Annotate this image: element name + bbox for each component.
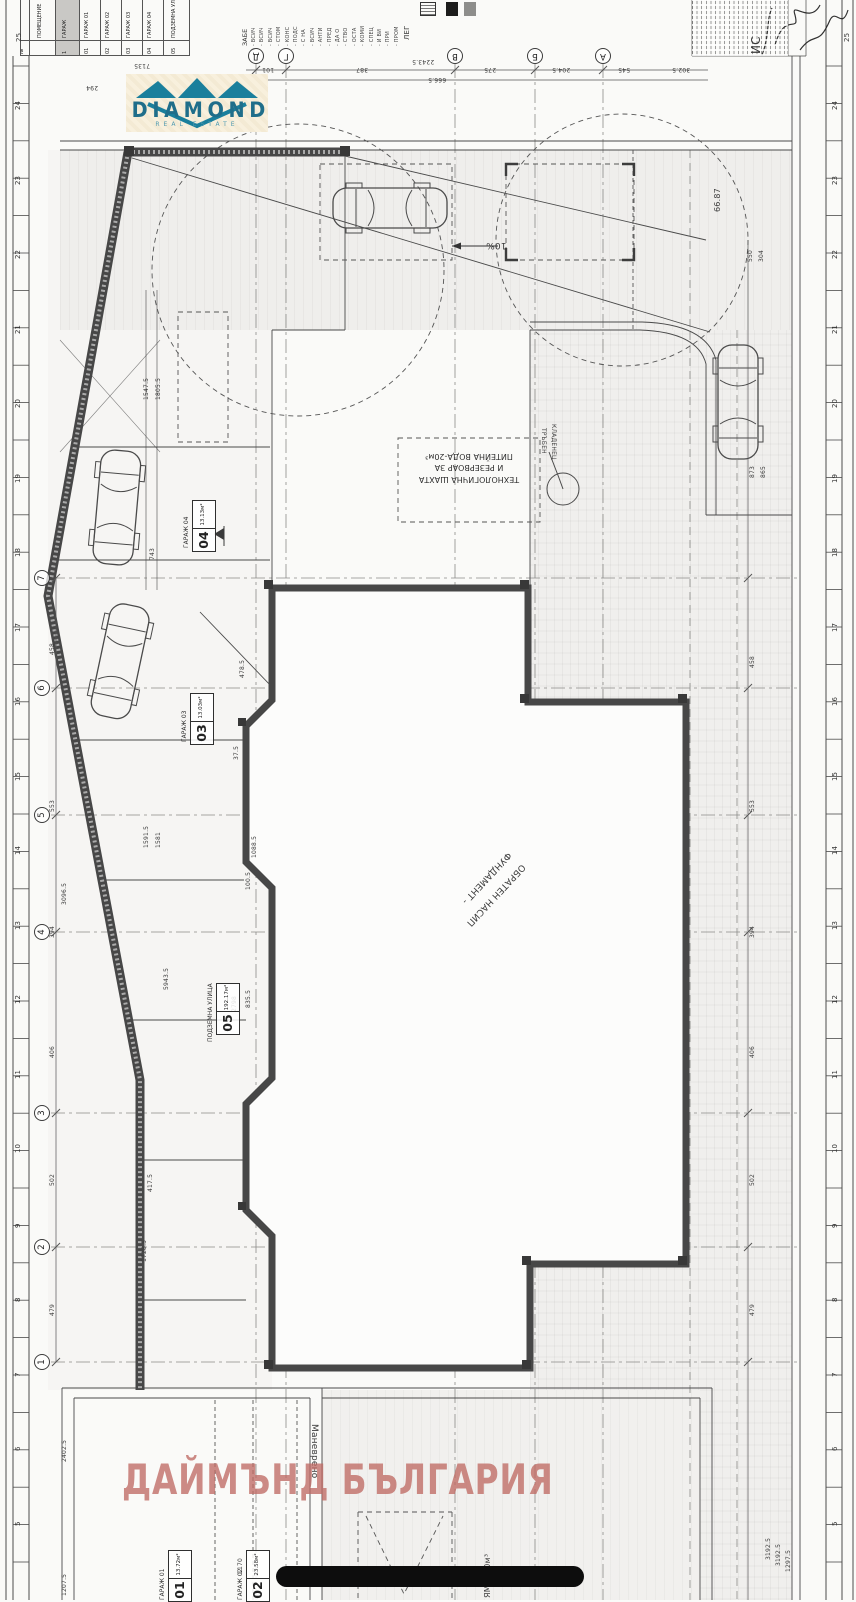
ruler-number: 19 [832, 474, 839, 483]
dimension-label: 2243.5 [412, 58, 434, 64]
note-line: - СТВО [344, 27, 349, 46]
ruler-number: 18 [832, 548, 839, 557]
right-yard-zone [530, 330, 792, 1600]
title-block-stamp [692, 0, 788, 56]
room-area-box: 0223.58м² [246, 1550, 270, 1602]
notes-title: ЗАБЕ [242, 29, 249, 46]
note-line: - ВСИЧ [252, 27, 257, 46]
axis-number-bubble: 1 [34, 1354, 50, 1370]
axis-number-bubble: 5 [34, 807, 50, 823]
dimension-label: 417.5 [148, 1174, 154, 1192]
ruler-number: 23 [15, 176, 22, 185]
dimension-label: 3192.5 [766, 1538, 772, 1560]
dimension-label: 406 [50, 1046, 56, 1058]
dimension-label: 3192.5 [776, 1544, 782, 1566]
dimension-label: 5943.5 [164, 968, 170, 990]
dimension-label: 1297.5 [786, 1550, 792, 1572]
shaft-line-3: ПИТЕЙНА ВОДА-20м³ [404, 450, 534, 462]
dimension-label: 304 [759, 250, 765, 262]
legend-table-column: ГАРАЖ 0303 [122, 0, 143, 56]
legend-room-label: ГАРАЖ [62, 20, 68, 38]
dimension-label: 101 [262, 66, 274, 72]
ruler-number: 17 [15, 623, 22, 632]
ruler-number: 20 [832, 399, 839, 408]
ruler-number: 6 [15, 1447, 22, 1451]
ruler-number: 8 [832, 1298, 839, 1302]
room-label: ГАРАЖ 02 [238, 1569, 244, 1601]
ruler-number: 22 [832, 250, 839, 259]
annotation-label: ОБРАТЕН НАСИП [464, 862, 526, 927]
legend-room-label: ГАРАЖ 01 [84, 12, 90, 38]
room-number: 02 [247, 1578, 269, 1601]
dimension-label: 7135 [134, 62, 150, 68]
ruler-number: 8 [15, 1298, 22, 1302]
dimension-label: 458 [750, 656, 756, 668]
legend-room-label: ГАРАЖ 02 [105, 12, 111, 38]
ruler-number: 21 [15, 325, 22, 334]
dimension-label: 743 [150, 548, 156, 560]
dimension-label: 1547.5 [144, 378, 150, 400]
axis-letter-bubble: Д [248, 48, 264, 64]
legend-room-number: 1 [62, 51, 68, 54]
ruler-number: 12 [15, 995, 22, 1004]
legend-room-number: 02 [105, 48, 111, 54]
dimension-label: 387 [356, 66, 368, 72]
legend-table-column: ПОДЗЕМНА УЛИЦА05 [164, 0, 190, 56]
room-area-value: 23.58м² [247, 1551, 269, 1578]
dimension-label: 550 [748, 250, 754, 262]
dimension-label: 204.5 [552, 66, 570, 72]
axis-number-bubble: 6 [34, 680, 50, 696]
legend-room-number: 04 [147, 48, 153, 54]
note-line: - С НА [302, 29, 307, 46]
dimension-label: 553 [50, 800, 56, 812]
legend-room-number: № [21, 49, 25, 54]
dimension-label: 100.5 [246, 872, 252, 890]
ruler-number: 21 [832, 325, 839, 334]
room-area-value: 192.17м² [217, 984, 239, 1011]
room-number: 03 [191, 721, 213, 744]
axis-number-bubble: 4 [34, 924, 50, 940]
ruler-number: 16 [15, 697, 22, 706]
dimension-label: 873 [750, 466, 756, 478]
note-line: - ПРОМ [395, 26, 400, 46]
ruler-number: 12 [832, 995, 839, 1004]
dimension-label: 2402.5 [62, 1440, 68, 1462]
dimension-label: 865 [761, 466, 767, 478]
room-area-value: 13.03м² [191, 694, 213, 721]
note-line: - ДА О [336, 29, 341, 46]
room-area-box: 05192.17м² [216, 983, 240, 1035]
ruler-number: 13 [832, 921, 839, 930]
dimension-label: 394 [50, 926, 56, 938]
note-line: - ПОДС [294, 26, 299, 46]
dimension-label: 835.5 [246, 990, 252, 1008]
ruler-number: 10 [832, 1144, 839, 1153]
axis-letter-bubble: Г [278, 48, 294, 64]
room-number: 04 [193, 528, 215, 551]
note-line: - ВСИЧ [260, 27, 265, 46]
ruler-number: 24 [15, 101, 22, 110]
note-line: - ПРЕД [328, 28, 333, 46]
dimension-label: 1805.5 [156, 378, 162, 400]
ruler-number: 7 [832, 1372, 839, 1376]
annotation-label: ФУНДАМЕНТ - [460, 850, 512, 905]
dimension-label: 502 [50, 1174, 56, 1186]
dimension-label: 666.5 [428, 76, 446, 82]
legend-table-column: ПОМЕЩЕНИЕ [30, 0, 56, 56]
ruler-number: 6 [832, 1447, 839, 1451]
ruler-number: 10 [15, 1144, 22, 1153]
shaft-line-2: И РЕЗЕРВОАР ЗА [404, 462, 534, 474]
annotation-label: ЛЕГ [404, 25, 411, 40]
ruler-number: 14 [832, 846, 839, 855]
ruler-right-numbers: 24232221201918171615141312111098765 [0, 0, 856, 1600]
dimension-label: 3096.5 [62, 883, 68, 905]
dimension-label: 1728.5 [142, 1240, 148, 1262]
dimension-label: 1581 [156, 832, 162, 848]
legend-room-label: ГАРАЖ 04 [147, 12, 153, 38]
shaft-annotation: ТЕХНОЛОГИЧНА ШАХТА И РЕЗЕРВОАР ЗА ПИТЕЙН… [404, 450, 534, 485]
note-line: - ПРИ [386, 31, 391, 46]
legend-symbol-black [446, 2, 458, 16]
dimension-label: 2798 [232, 996, 238, 1012]
room-number: 05 [217, 1011, 239, 1034]
dimensions-top: 71352942243.5101387275204.5545302.5666.5 [0, 0, 856, 1600]
logo-brand-text: DIAMOND [132, 98, 263, 122]
dimension-label: 479 [750, 1304, 756, 1316]
misc-annotations: 10%66.87МаневреноЯМА 2.0м³2525ИСТРЪБЕНКЛ… [0, 0, 856, 1600]
dimensions-inner: 1547.51805.5743478.537.51591.515811088.5… [0, 0, 856, 1600]
ruler-number: 15 [15, 772, 22, 781]
dimension-label: 1591.5 [144, 826, 150, 848]
ruler-number: 18 [15, 548, 22, 557]
axis-letter-bubbles: ДГВБА [0, 0, 856, 1600]
dimension-label: 553 [750, 800, 756, 812]
room-area-box: 0413.13м² [192, 500, 216, 552]
ruler-number: 11 [832, 1070, 839, 1079]
ruler-number: 16 [832, 697, 839, 706]
room-legend-table: №ПОМЕЩЕНИЕГАРАЖ1ГАРАЖ 0101ГАРАЖ 0202ГАРА… [20, 0, 190, 56]
ruler-number: 24 [832, 101, 839, 110]
redaction-bar [276, 1566, 584, 1587]
axis-number-bubbles: 7654321 [0, 0, 856, 1600]
note-line: - ОСТА [353, 28, 358, 47]
axis-letter-bubble: А [595, 48, 611, 64]
shaft-line-1: ТЕХНОЛОГИЧНА ШАХТА [404, 473, 534, 485]
legend-symbol-outline [420, 2, 436, 16]
legend-room-number: 03 [126, 48, 132, 54]
legend-room-label: ПОМЕЩЕНИЕ [37, 4, 43, 38]
diamond-logo: DIAMOND REAL ESTATE [126, 74, 268, 132]
note-line: - И ВИ [378, 29, 383, 46]
dimension-label: 478.5 [240, 660, 246, 678]
dimension-label: 294 [86, 84, 98, 90]
room-label: ПОДЗЕМНА УЛИЦА [208, 983, 214, 1042]
axis-letter-bubble: В [447, 48, 463, 64]
room-area-box: 0113.72м² [168, 1550, 192, 1602]
dimension-label: 302.5 [672, 66, 690, 72]
annotation-label: 66.87 [714, 188, 722, 212]
legend-room-number: 01 [84, 48, 90, 54]
ramp-street-zone [60, 150, 792, 330]
legend-table-column: № [20, 0, 30, 56]
dimensions-left: 4585533944065024793096.52402.51207.5 [0, 0, 856, 1600]
axis-number-bubble: 7 [34, 570, 50, 586]
room-labels: ГАРАЖ 040413.13м²ГАРАЖ 030313.03м²ПОДЗЕМ… [0, 0, 856, 1600]
room-area-value: 13.72м² [169, 1551, 191, 1578]
ruler-number: 9 [832, 1223, 839, 1227]
ruler-number: 15 [832, 772, 839, 781]
notes-block: - ВСИЧ- ВСИЧ- ВСИЧ- СТОМ- КОНС- ПОДС- С … [0, 0, 856, 1600]
note-line: - КОМИ [361, 26, 366, 46]
axis-number-bubble: 2 [34, 1239, 50, 1255]
dimension-label: 1207.5 [62, 1574, 68, 1596]
ruler-number: 20 [15, 399, 22, 408]
dimension-label: 394 [750, 926, 756, 938]
scanned-floor-plan-sheet: { "watermark": { "text": "ДАЙМЪНД БЪЛГАР… [0, 0, 856, 1600]
floor-plan-drawing [0, 0, 856, 1600]
dimension-label: 502 [750, 1174, 756, 1186]
dimension-label: 545 [618, 66, 630, 72]
legend-table-column: ГАРАЖ 0404 [143, 0, 164, 56]
ruler-number: 22 [15, 250, 22, 259]
left-parking-zone [48, 150, 272, 1390]
note-line: - СПЕЦ [370, 27, 375, 46]
ruler-number: 14 [15, 846, 22, 855]
dimension-label: 1088.5 [252, 836, 258, 858]
axis-letter-bubble: Б [527, 48, 543, 64]
ruler-left-numbers: 24232221201918171615141312111098765 [0, 0, 856, 1600]
annotation-label: 25 [844, 33, 851, 42]
note-line: - СТОМ [277, 27, 282, 46]
ruler-number: 19 [15, 474, 22, 483]
annotation-label: КЛАДЕНЕЦ [550, 424, 556, 460]
room-label: ГАРАЖ 01 [160, 1569, 166, 1601]
watermark-text: ДАЙМЪНД БЪЛГАРИЯ [122, 1455, 554, 1504]
legend-table-column: ГАРАЖ1 [56, 0, 80, 56]
legend-table-column: ГАРАЖ 0101 [80, 0, 101, 56]
note-line: - ВСИЧ [311, 27, 316, 46]
room-area-box: 0313.03м² [190, 693, 214, 745]
ruler-number: 7 [15, 1372, 22, 1376]
axis-number-bubble: 3 [34, 1105, 50, 1121]
annotation-label: ТРЪБЕН [540, 428, 546, 454]
ruler-number: 5 [15, 1521, 22, 1525]
room-number: 01 [169, 1578, 191, 1601]
ruler-number: 5 [832, 1521, 839, 1525]
legend-symbol-gray [464, 2, 476, 16]
dimension-label: 479 [50, 1304, 56, 1316]
dimension-label: 37.5 [234, 746, 240, 760]
dimension-label: 458 [50, 643, 56, 655]
ruler-number: 9 [15, 1223, 22, 1227]
legend-table-column: ГАРАЖ 0202 [101, 0, 122, 56]
legend-room-label: ПОДЗЕМНА УЛИЦА [171, 0, 177, 38]
note-line: - КОНС [286, 27, 291, 46]
room-label: ГАРАЖ 04 [184, 517, 190, 549]
legend-room-number: 05 [171, 48, 177, 54]
note-line: - ВСИЧ [269, 27, 274, 46]
note-line: - АНТИ [319, 27, 324, 46]
dimension-label: 275 [484, 66, 496, 72]
dimension-label: 1170 [238, 1558, 244, 1574]
ruler-number: 17 [832, 623, 839, 632]
room-area-value: 13.13м² [193, 501, 215, 528]
dimension-label: 406 [750, 1046, 756, 1058]
legend-room-label: ГАРАЖ 03 [126, 12, 132, 38]
room-label: ГАРАЖ 03 [182, 711, 188, 743]
annotation-label: 10% [486, 240, 507, 249]
logo-tagline-text: REAL ESTATE [126, 121, 268, 128]
ruler-number: 23 [832, 176, 839, 185]
ruler-number: 11 [15, 1070, 22, 1079]
dimensions-right: 5503048738654585533944065024793192.53192… [0, 0, 856, 1600]
ruler-number: 13 [15, 921, 22, 930]
